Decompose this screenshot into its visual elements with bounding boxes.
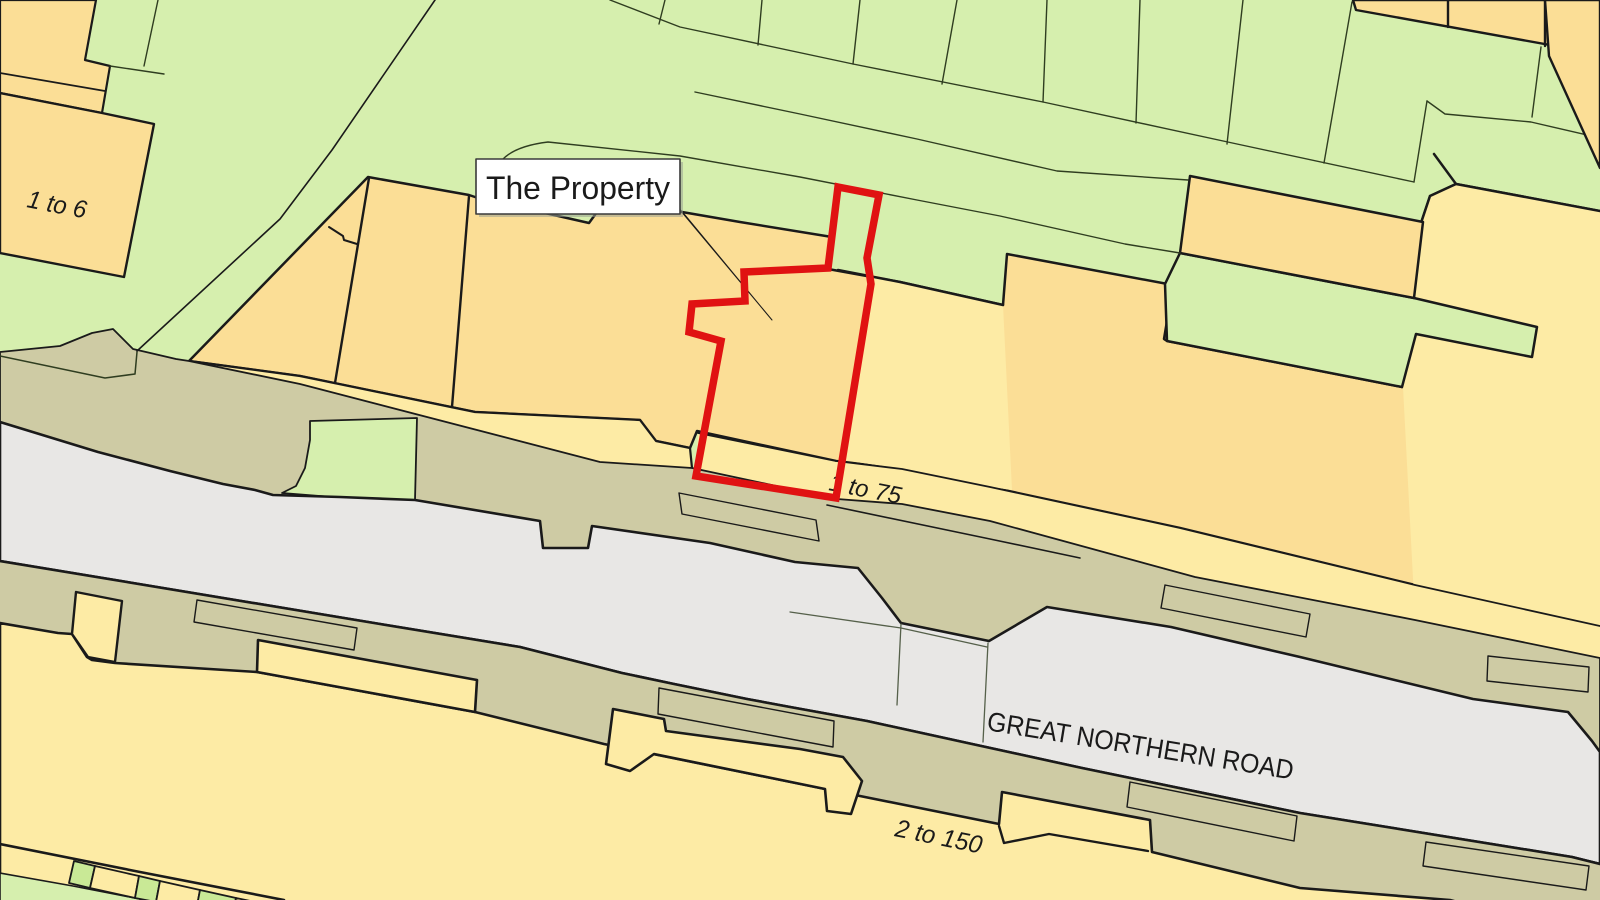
svg-text:The Property: The Property [486, 170, 671, 206]
